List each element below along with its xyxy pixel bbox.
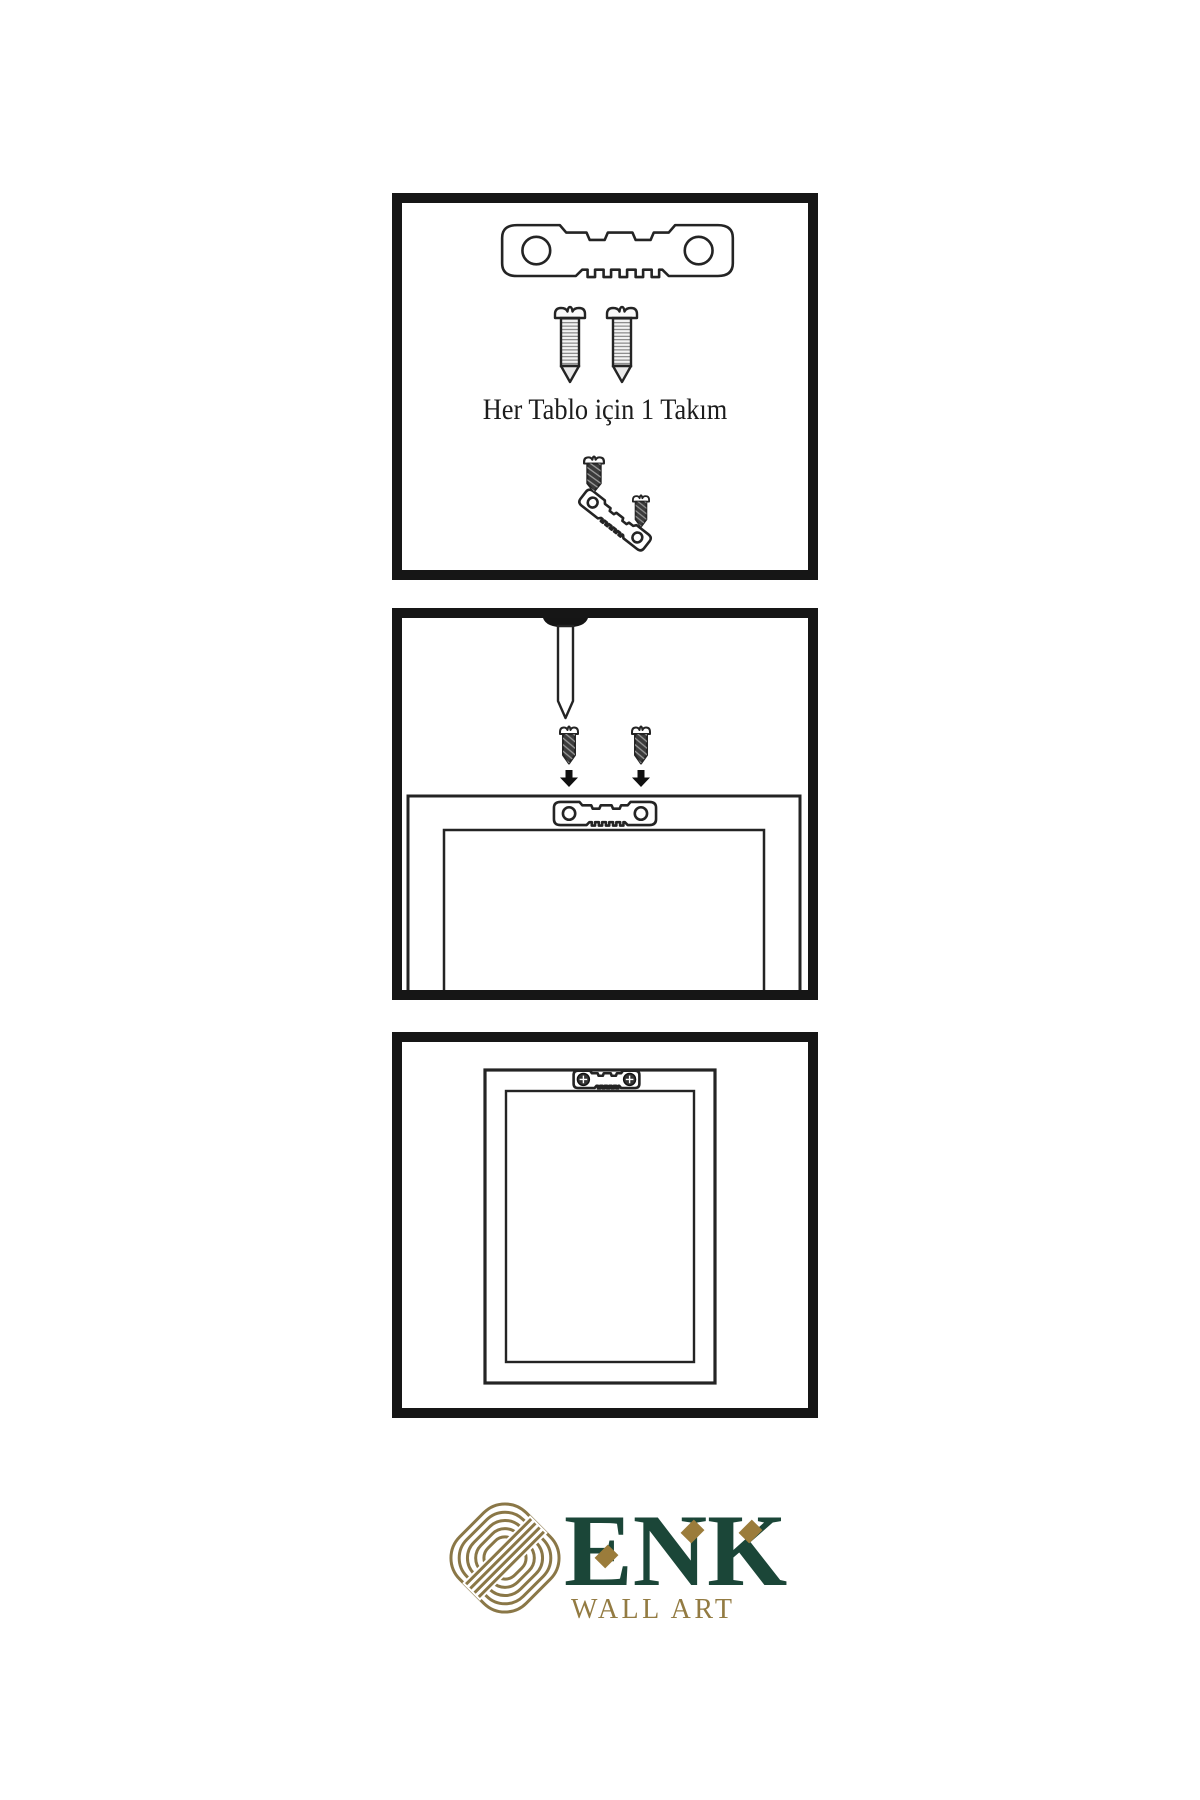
panel-mounting-steps (392, 608, 818, 1000)
sawtooth-hanger-icon (502, 225, 733, 277)
screw-icon (607, 307, 637, 382)
phillips-screw-head-icon (577, 1073, 589, 1085)
brand-tagline: WALL ART (571, 1596, 736, 1624)
frame-inner-edge (506, 1091, 694, 1362)
instruction-sheet: Her Tablo için 1 Takım (0, 0, 1200, 1800)
sawtooth-hanger-icon (554, 802, 656, 826)
mounting-illustration (402, 618, 808, 990)
nail-icon (558, 626, 573, 718)
kit-caption: Her Tablo için 1 Takım (426, 393, 783, 427)
small-screw-icon (633, 495, 649, 526)
small-screw-icon (584, 456, 604, 491)
hung-frame-illustration (402, 1042, 808, 1408)
frame-back-inner-edge (444, 830, 764, 990)
brand-name: ENK (564, 1500, 787, 1603)
dark-screw-icon (560, 727, 578, 764)
phillips-screw-head-icon (624, 1073, 636, 1085)
screw-icon (555, 307, 585, 382)
arrow-down-icon (560, 770, 578, 787)
dark-screw-icon (632, 727, 650, 764)
hardware-kit-illustration (402, 203, 808, 570)
arrow-down-icon (632, 770, 650, 787)
knot-logo-icon (440, 1488, 570, 1628)
panel-hung-frame (392, 1032, 818, 1418)
panel-hardware-kit: Her Tablo için 1 Takım (392, 193, 818, 580)
